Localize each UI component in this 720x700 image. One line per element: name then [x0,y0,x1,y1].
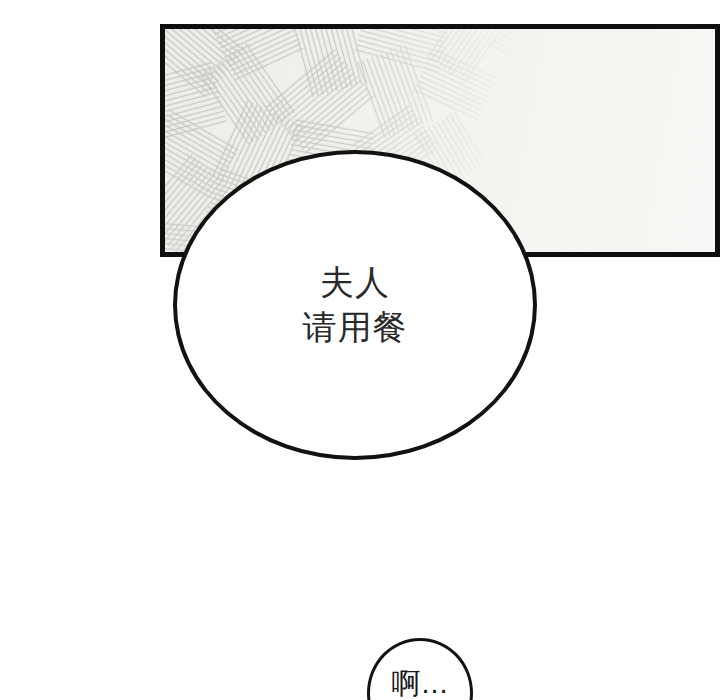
speech-bubble-reaction: 啊... [367,638,473,700]
speech-bubble-main-text: 夫人 请用餐 [303,260,408,350]
comic-page: 夫人 请用餐 啊... [0,0,720,700]
speech-bubble-reaction-text: 啊... [391,664,448,700]
speech-line: 请用餐 [303,305,408,350]
speech-line: 夫人 [303,260,408,305]
speech-bubble-main: 夫人 请用餐 [173,150,537,460]
